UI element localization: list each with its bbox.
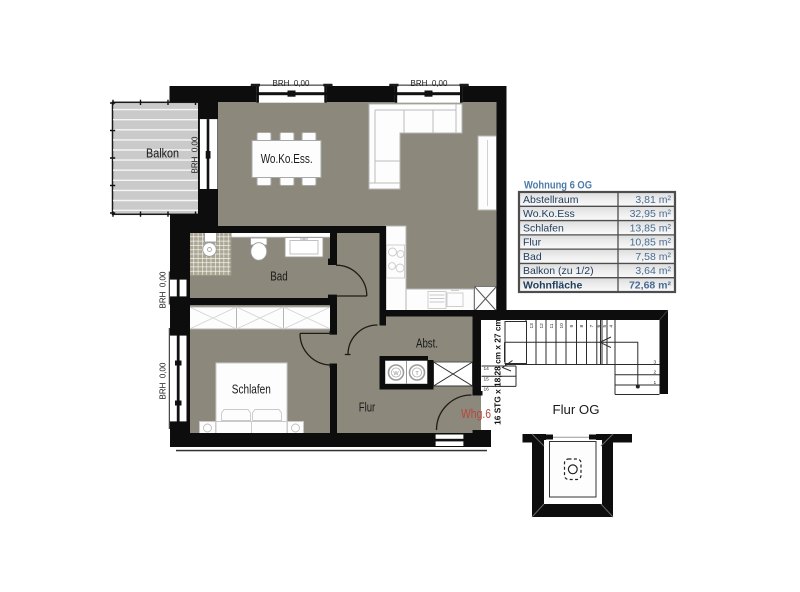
svg-text:2: 2 <box>654 370 657 376</box>
svg-text:Balkon: Balkon <box>146 147 179 161</box>
svg-text:BRH 0,00: BRH 0,00 <box>159 362 168 399</box>
svg-text:3,64 m²: 3,64 m² <box>635 265 671 277</box>
svg-text:11: 11 <box>549 323 555 328</box>
svg-text:BRH 0,00: BRH 0,00 <box>273 79 310 88</box>
svg-text:W: W <box>393 371 399 377</box>
svg-text:8: 8 <box>579 325 585 328</box>
svg-text:1: 1 <box>654 380 657 386</box>
svg-text:Schlafen: Schlafen <box>523 222 564 234</box>
svg-text:Wo.Ko.Ess.: Wo.Ko.Ess. <box>261 151 313 166</box>
svg-text:5: 5 <box>602 325 608 328</box>
svg-text:7,58 m²: 7,58 m² <box>635 251 671 263</box>
svg-text:Abst.: Abst. <box>416 336 438 351</box>
svg-text:16: 16 <box>484 387 490 393</box>
svg-text:10: 10 <box>559 323 565 329</box>
svg-text:Schlafen: Schlafen <box>232 381 271 396</box>
svg-text:Bad: Bad <box>523 251 542 263</box>
svg-text:10,85 m²: 10,85 m² <box>630 237 672 249</box>
svg-text:BRH 0,00: BRH 0,00 <box>190 136 199 173</box>
svg-text:Bad: Bad <box>270 269 288 284</box>
svg-text:32,95 m²: 32,95 m² <box>630 208 672 220</box>
svg-text:13,85 m²: 13,85 m² <box>630 222 672 234</box>
svg-text:Flur OG: Flur OG <box>553 402 600 417</box>
svg-text:7: 7 <box>589 325 595 328</box>
svg-text:Abstellraum: Abstellraum <box>523 194 579 206</box>
svg-text:BRH 0,00: BRH 0,00 <box>411 79 448 88</box>
svg-text:3,81 m²: 3,81 m² <box>635 194 671 206</box>
svg-text:Flur: Flur <box>359 400 376 415</box>
svg-text:12: 12 <box>539 323 545 329</box>
svg-text:14: 14 <box>484 366 490 372</box>
svg-text:Wohnfläche: Wohnfläche <box>523 280 582 292</box>
svg-text:Wohnung 6 OG: Wohnung 6 OG <box>524 180 592 192</box>
svg-text:Flur: Flur <box>523 237 542 249</box>
svg-text:16 STG x 18,28 cm x 27 cm: 16 STG x 18,28 cm x 27 cm <box>493 319 503 425</box>
svg-text:4: 4 <box>609 325 615 328</box>
svg-text:6: 6 <box>596 325 602 328</box>
svg-text:15: 15 <box>484 376 490 382</box>
svg-text:Whg.6: Whg.6 <box>461 406 491 421</box>
svg-text:13: 13 <box>529 323 535 329</box>
svg-text:3: 3 <box>654 359 657 365</box>
svg-text:72,68 m²: 72,68 m² <box>629 280 672 292</box>
svg-text:9: 9 <box>569 325 575 328</box>
svg-text:Wo.Ko.Ess: Wo.Ko.Ess <box>523 208 575 220</box>
svg-text:Balkon (zu 1/2): Balkon (zu 1/2) <box>523 265 594 277</box>
svg-text:BRH 0,00: BRH 0,00 <box>159 271 168 308</box>
